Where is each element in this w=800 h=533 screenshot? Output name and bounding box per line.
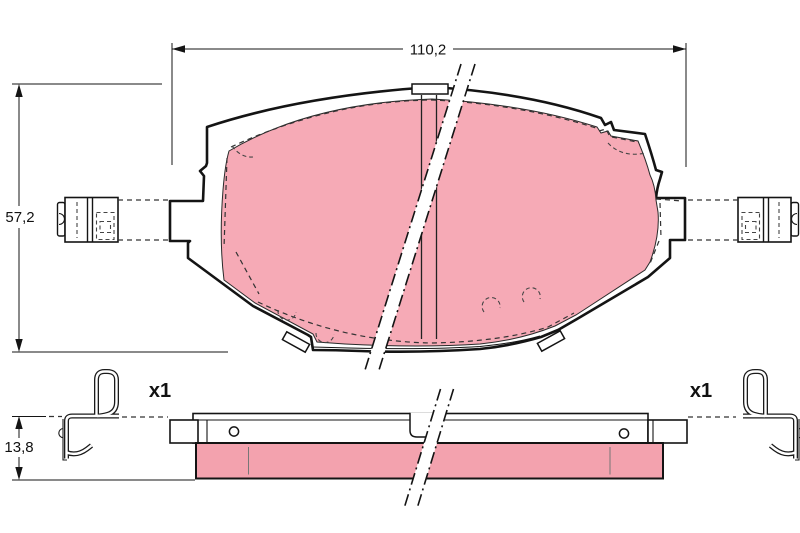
retaining-clip-left: [59, 372, 119, 461]
arrowhead-right: [673, 45, 686, 53]
pad-front-view: [170, 84, 685, 352]
connector-link-dashed-left: [118, 200, 168, 240]
arrowhead-down: [15, 467, 22, 480]
arrowhead-down: [15, 339, 22, 352]
dimension-thickness-label: 13,8: [4, 439, 33, 456]
dimension-thickness: 13,8: [4, 416, 195, 480]
rivet-hole-left: [229, 427, 238, 436]
arrowhead-up: [15, 416, 22, 429]
dimension-height-label: 57,2: [5, 209, 34, 226]
retaining-clip-right: [743, 372, 800, 461]
rivet-hole-right: [619, 429, 628, 438]
wear-sensor-connector-right: [738, 198, 799, 243]
wear-sensor-connector-left: [58, 198, 119, 243]
quantity-label-right: x1: [690, 380, 712, 402]
backplate-ear-left: [170, 420, 198, 443]
brake-pad-technical-drawing: 110,2 57,2 13,8: [0, 0, 800, 533]
connector-link-dashed-right: [688, 200, 738, 240]
arrowhead-up: [15, 84, 22, 97]
quantity-label-left: x1: [149, 380, 171, 402]
connector-body: [65, 198, 118, 243]
top-center-tab: [412, 84, 448, 94]
connector-cap: [58, 203, 66, 237]
arrowhead-left: [172, 45, 185, 53]
dimension-width-label: 110,2: [410, 42, 446, 59]
backplate-ear-right: [648, 420, 687, 443]
